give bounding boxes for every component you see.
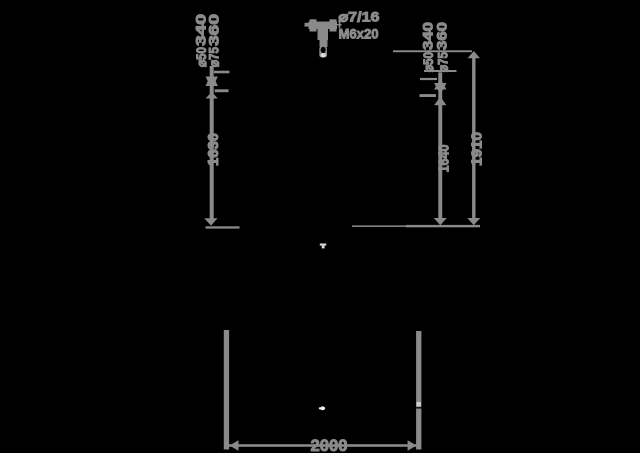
svg-text:⌀75: ⌀75 (207, 47, 222, 67)
svg-text:⌀50: ⌀50 (421, 52, 436, 72)
svg-text:2000: 2000 (311, 436, 348, 453)
svg-text:1910: 1910 (470, 132, 486, 166)
svg-text:340: 340 (421, 22, 436, 50)
svg-text:⌀75: ⌀75 (436, 52, 451, 72)
svg-text:1640: 1640 (437, 145, 453, 173)
svg-text:M6x20: M6x20 (339, 26, 379, 42)
svg-text:360: 360 (207, 14, 222, 46)
svg-text:1630: 1630 (206, 133, 222, 166)
svg-text:⌀7/16: ⌀7/16 (339, 9, 380, 25)
svg-text:360: 360 (435, 22, 450, 50)
